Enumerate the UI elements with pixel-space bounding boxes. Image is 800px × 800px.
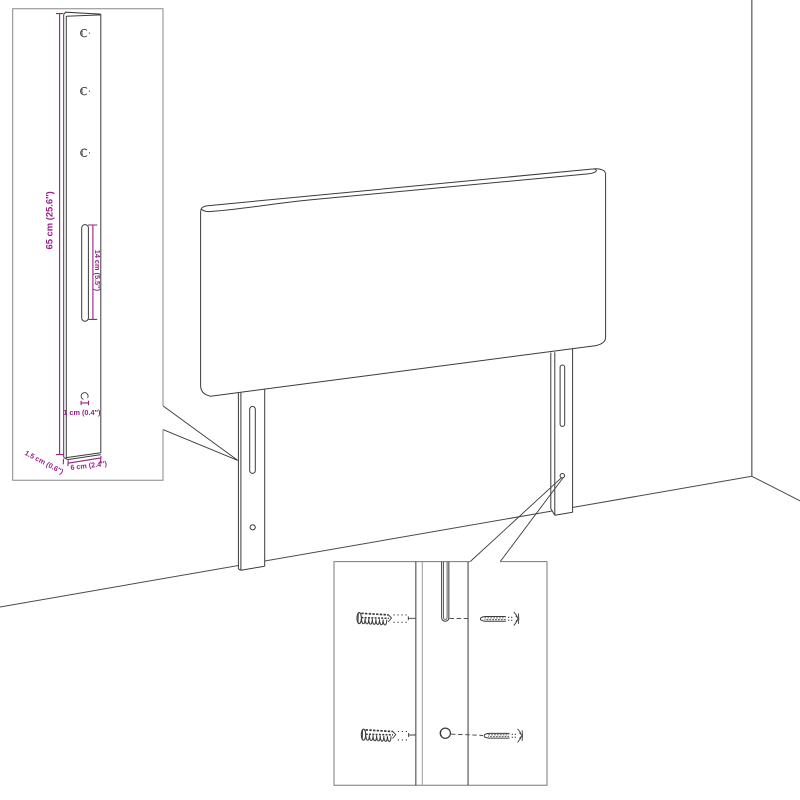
svg-text:65 cm (25.6″): 65 cm (25.6″): [44, 191, 55, 249]
svg-text:6 cm (2.4″): 6 cm (2.4″): [70, 459, 108, 472]
svg-text:14 cm (5.5″): 14 cm (5.5″): [93, 250, 102, 292]
svg-text:1 cm (0.4″): 1 cm (0.4″): [63, 408, 101, 417]
